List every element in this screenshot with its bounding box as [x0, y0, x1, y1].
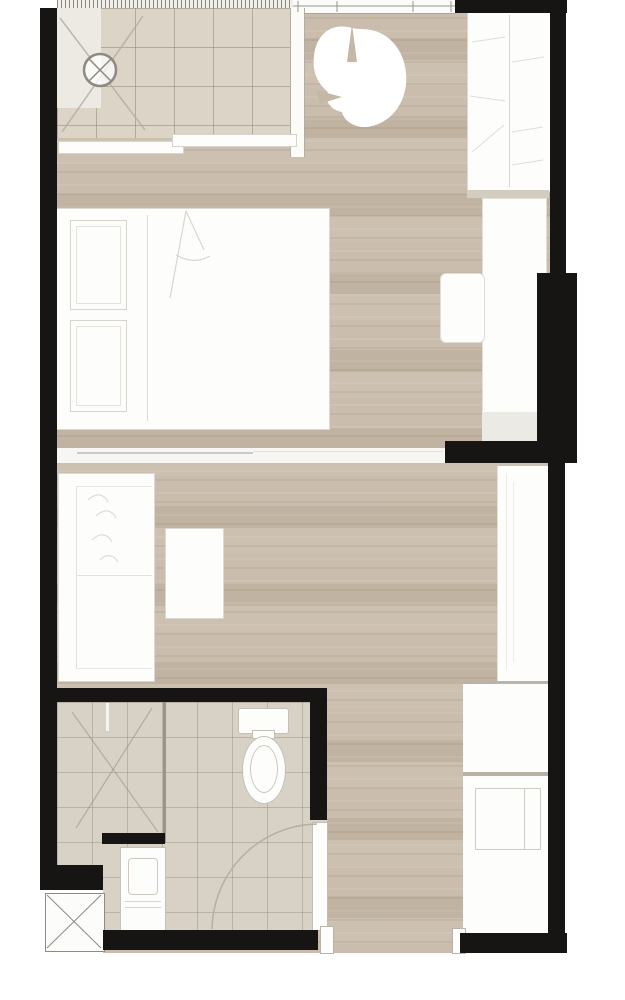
- partition-track: [77, 452, 253, 454]
- wall-top-right: [455, 0, 567, 13]
- wall-bathroom-left-jog: [40, 865, 103, 890]
- entrance-jamb-left: [320, 926, 334, 954]
- appliance: [475, 788, 541, 850]
- counter-upper: [463, 684, 548, 772]
- wardrobe-shadow: [467, 190, 549, 198]
- wardrobe: [467, 12, 551, 192]
- coffee-table: [165, 528, 224, 619]
- desk-counter-shadow: [482, 412, 545, 441]
- wall-shower-stub: [102, 833, 165, 844]
- toilet-bowl: [242, 736, 286, 804]
- headboard-line: [147, 215, 148, 421]
- wall-bathroom-right: [310, 702, 327, 820]
- pillow-bottom: [70, 320, 127, 412]
- wall-right-upper: [550, 13, 566, 273]
- shower-fixture: [106, 703, 109, 731]
- pillow-top: [70, 220, 127, 310]
- kitchen-counter: [497, 466, 549, 681]
- partition-track-2: [253, 451, 443, 452]
- balcony-shower-tray: [57, 8, 101, 108]
- floor-plan: [0, 0, 625, 1000]
- wall-bottom-right: [460, 933, 567, 953]
- wall-bathroom-top: [57, 688, 327, 702]
- wall-right-lower: [548, 463, 565, 935]
- wall-left: [40, 8, 57, 890]
- bathroom-door: [312, 822, 328, 931]
- sliding-door-panel-right: [172, 134, 297, 147]
- vanity-sink: [120, 847, 166, 931]
- sliding-door-panel-left: [58, 141, 184, 154]
- service-shaft: [45, 893, 105, 952]
- sofa: [58, 473, 155, 682]
- wall-bathroom-bottom: [103, 930, 318, 950]
- wall-partition-right: [445, 441, 577, 463]
- shower-divider: [163, 702, 166, 843]
- stool: [440, 273, 485, 343]
- window-band: [293, 0, 455, 14]
- wall-right-column: [537, 273, 577, 443]
